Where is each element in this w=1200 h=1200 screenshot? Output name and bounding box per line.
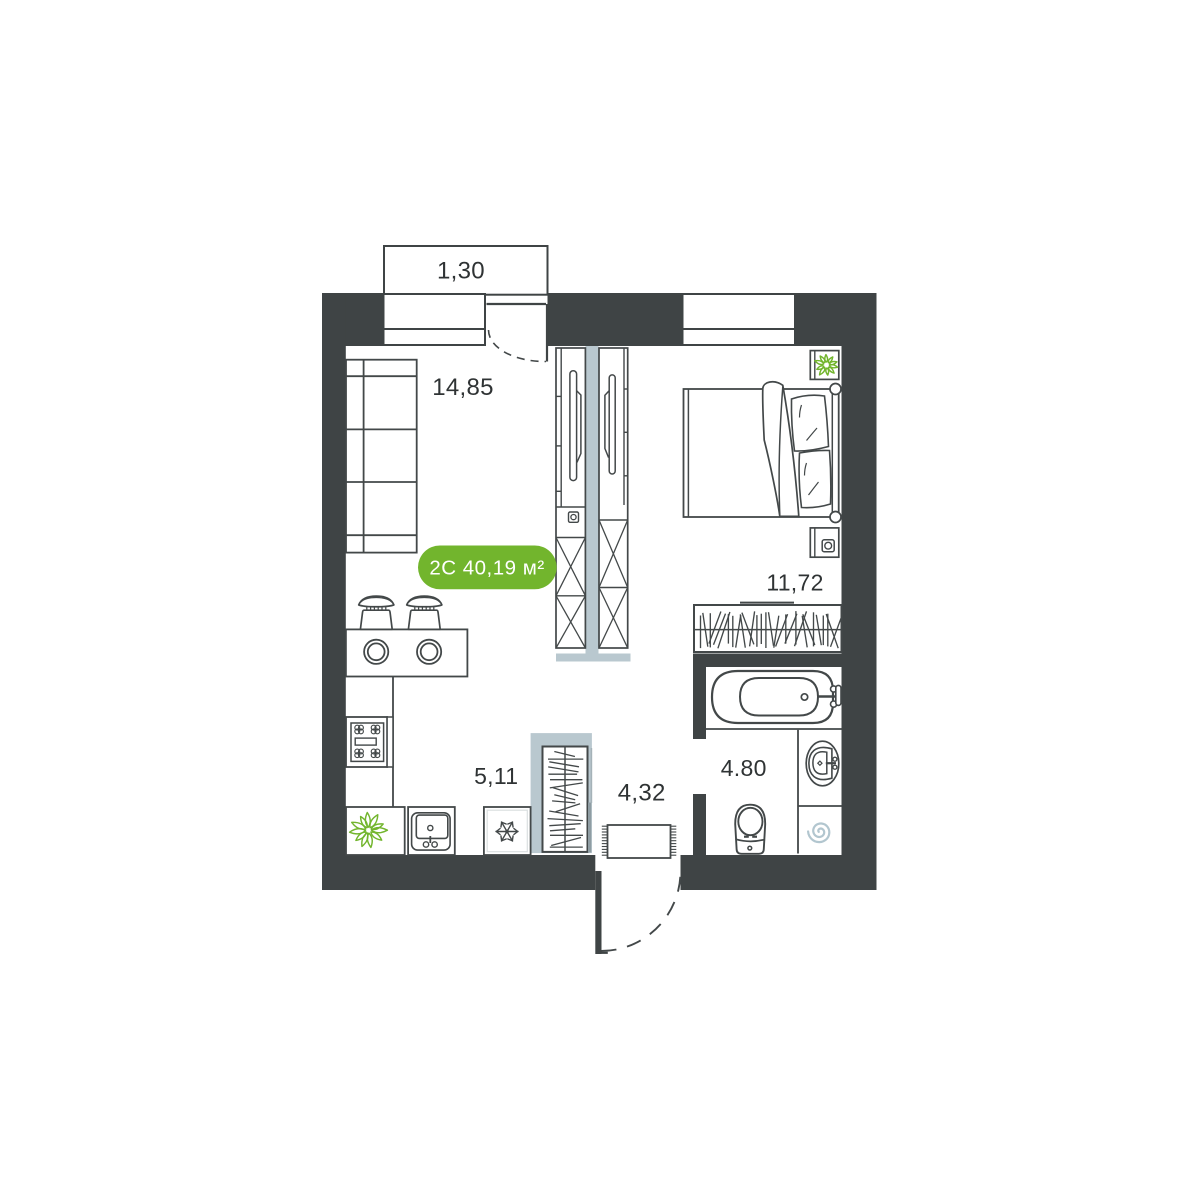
- svg-text:4,32: 4,32: [618, 780, 666, 807]
- svg-text:2С 40,19 м²: 2С 40,19 м²: [429, 557, 544, 580]
- svg-text:4.80: 4.80: [721, 755, 767, 781]
- svg-text:1,30: 1,30: [437, 257, 485, 284]
- svg-text:5,11: 5,11: [474, 763, 518, 789]
- svg-text:14,85: 14,85: [432, 374, 494, 401]
- svg-text:11,72: 11,72: [766, 569, 823, 595]
